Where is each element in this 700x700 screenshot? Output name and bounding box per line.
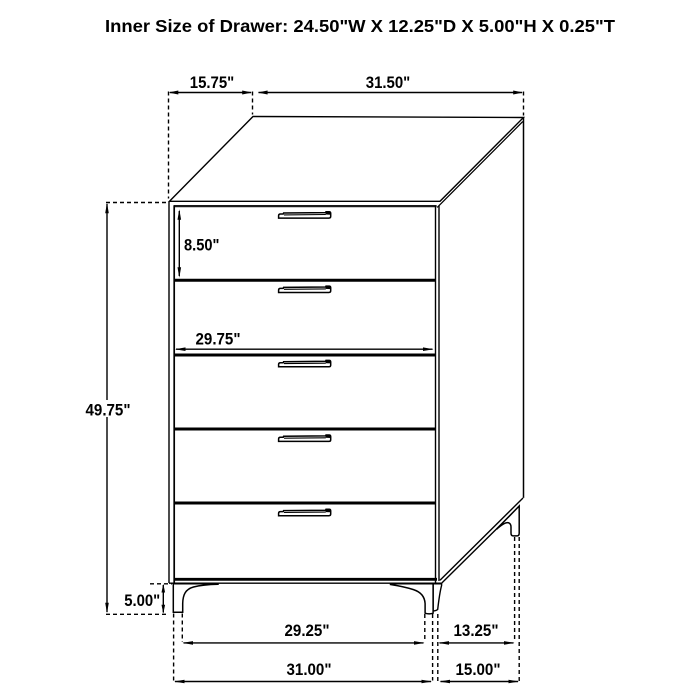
svg-text:15.00": 15.00" (456, 661, 501, 679)
svg-text:5.00": 5.00" (124, 592, 160, 610)
svg-text:29.75": 29.75" (196, 330, 241, 348)
svg-text:Inner Size of Drawer: 24.50"W: Inner Size of Drawer: 24.50"W X 12.25"D … (105, 16, 615, 36)
svg-text:13.25": 13.25" (454, 622, 499, 640)
svg-text:8.50": 8.50" (184, 237, 219, 255)
svg-text:29.25": 29.25" (285, 622, 330, 640)
svg-text:15.75": 15.75" (190, 74, 235, 92)
svg-text:31.00": 31.00" (287, 661, 332, 679)
svg-text:49.75": 49.75" (86, 401, 131, 419)
svg-text:31.50": 31.50" (366, 74, 411, 92)
